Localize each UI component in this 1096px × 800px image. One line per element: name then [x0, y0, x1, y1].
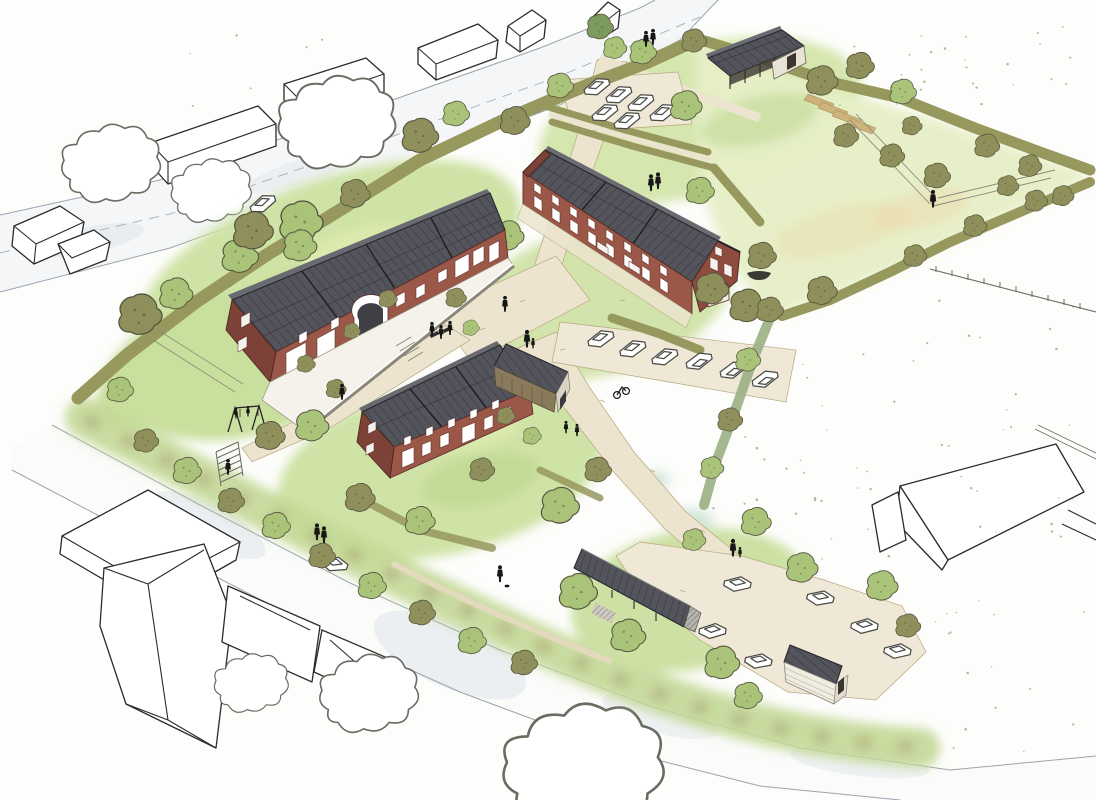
- site-illustration: [0, 0, 1096, 800]
- dog: [505, 585, 510, 588]
- site-plan-canvas: [0, 0, 1096, 800]
